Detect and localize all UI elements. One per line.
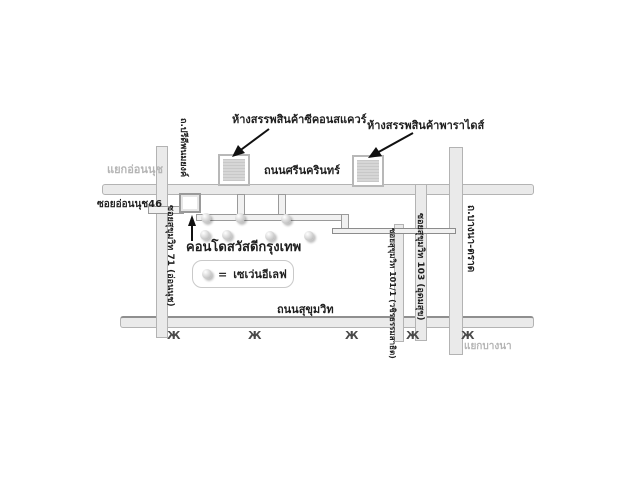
seven-eleven-marker-icon <box>281 214 291 224</box>
sukhumvit71-road-label: ซอยสุขุมวิท 71 (อ่อนนุช) <box>164 205 174 307</box>
legend-equals: = <box>218 268 227 281</box>
srinakarin-road-label: ถนนศรีนครินทร์ <box>264 165 340 177</box>
map-canvas: ห้างสรรพสินค้าซีคอนสแควร์ ห้างสรรพสินค้า… <box>0 0 640 480</box>
bangna-trat-road <box>449 147 463 355</box>
station-icon: Ж <box>248 329 261 342</box>
seacon-arrow-icon <box>225 124 275 160</box>
seven-eleven-marker-icon <box>222 230 232 240</box>
onnut-junction-label: แยกอ่อนนุช <box>107 164 163 176</box>
pridi-banomyong-road-label: ถ.ปรีดีพนมยงค์ <box>177 118 187 177</box>
sukhumvit103-road-label: ซอยสุขุมวิท 103 (อุดมสุข) <box>414 213 424 320</box>
station-icon: Ж <box>406 329 419 342</box>
paradise-label: ห้างสรรพสินค้าพาราไดส์ <box>367 120 484 132</box>
bangna-trat-road-label: ถ.บางนา-ตราด <box>465 205 476 272</box>
seven-eleven-marker-icon <box>304 231 314 241</box>
sukhumvit-road-label: ถนนสุขุมวิท <box>277 304 334 316</box>
station-icon: Ж <box>461 329 474 342</box>
condo-building <box>179 193 201 213</box>
legend-box: = เซเว่นอีเลฟ <box>192 260 294 288</box>
sukhumvit101-road-label: ซอยสุขุมวิท 101/1 (วชิรธรรมสาธิต) <box>387 228 396 359</box>
legend-label: เซเว่นอีเลฟ <box>233 265 287 283</box>
station-icon: Ж <box>167 329 180 342</box>
paradise-building-fill <box>357 160 379 182</box>
seven-eleven-marker-icon <box>202 269 212 279</box>
soi-connector-1 <box>237 194 245 215</box>
bangna-junction-label: แยกบางนา <box>464 341 512 352</box>
seacon-square-label: ห้างสรรพสินค้าซีคอนสแควร์ <box>232 114 367 126</box>
onnut46-soi-label: ซอยอ่อนนุช46 <box>97 199 162 210</box>
inner-soi-upper <box>196 214 348 221</box>
sukhumvit-road <box>120 316 534 328</box>
seven-eleven-marker-icon <box>235 213 245 223</box>
soi-connector-2 <box>278 194 286 215</box>
seven-eleven-marker-icon <box>201 213 211 223</box>
station-icon: Ж <box>345 329 358 342</box>
paradise-arrow-icon <box>362 128 418 162</box>
seven-eleven-marker-icon <box>200 230 210 240</box>
seacon-square-building-fill <box>223 159 245 181</box>
condo-label: คอนโดสวัสดีกรุงเทพ <box>186 241 301 255</box>
